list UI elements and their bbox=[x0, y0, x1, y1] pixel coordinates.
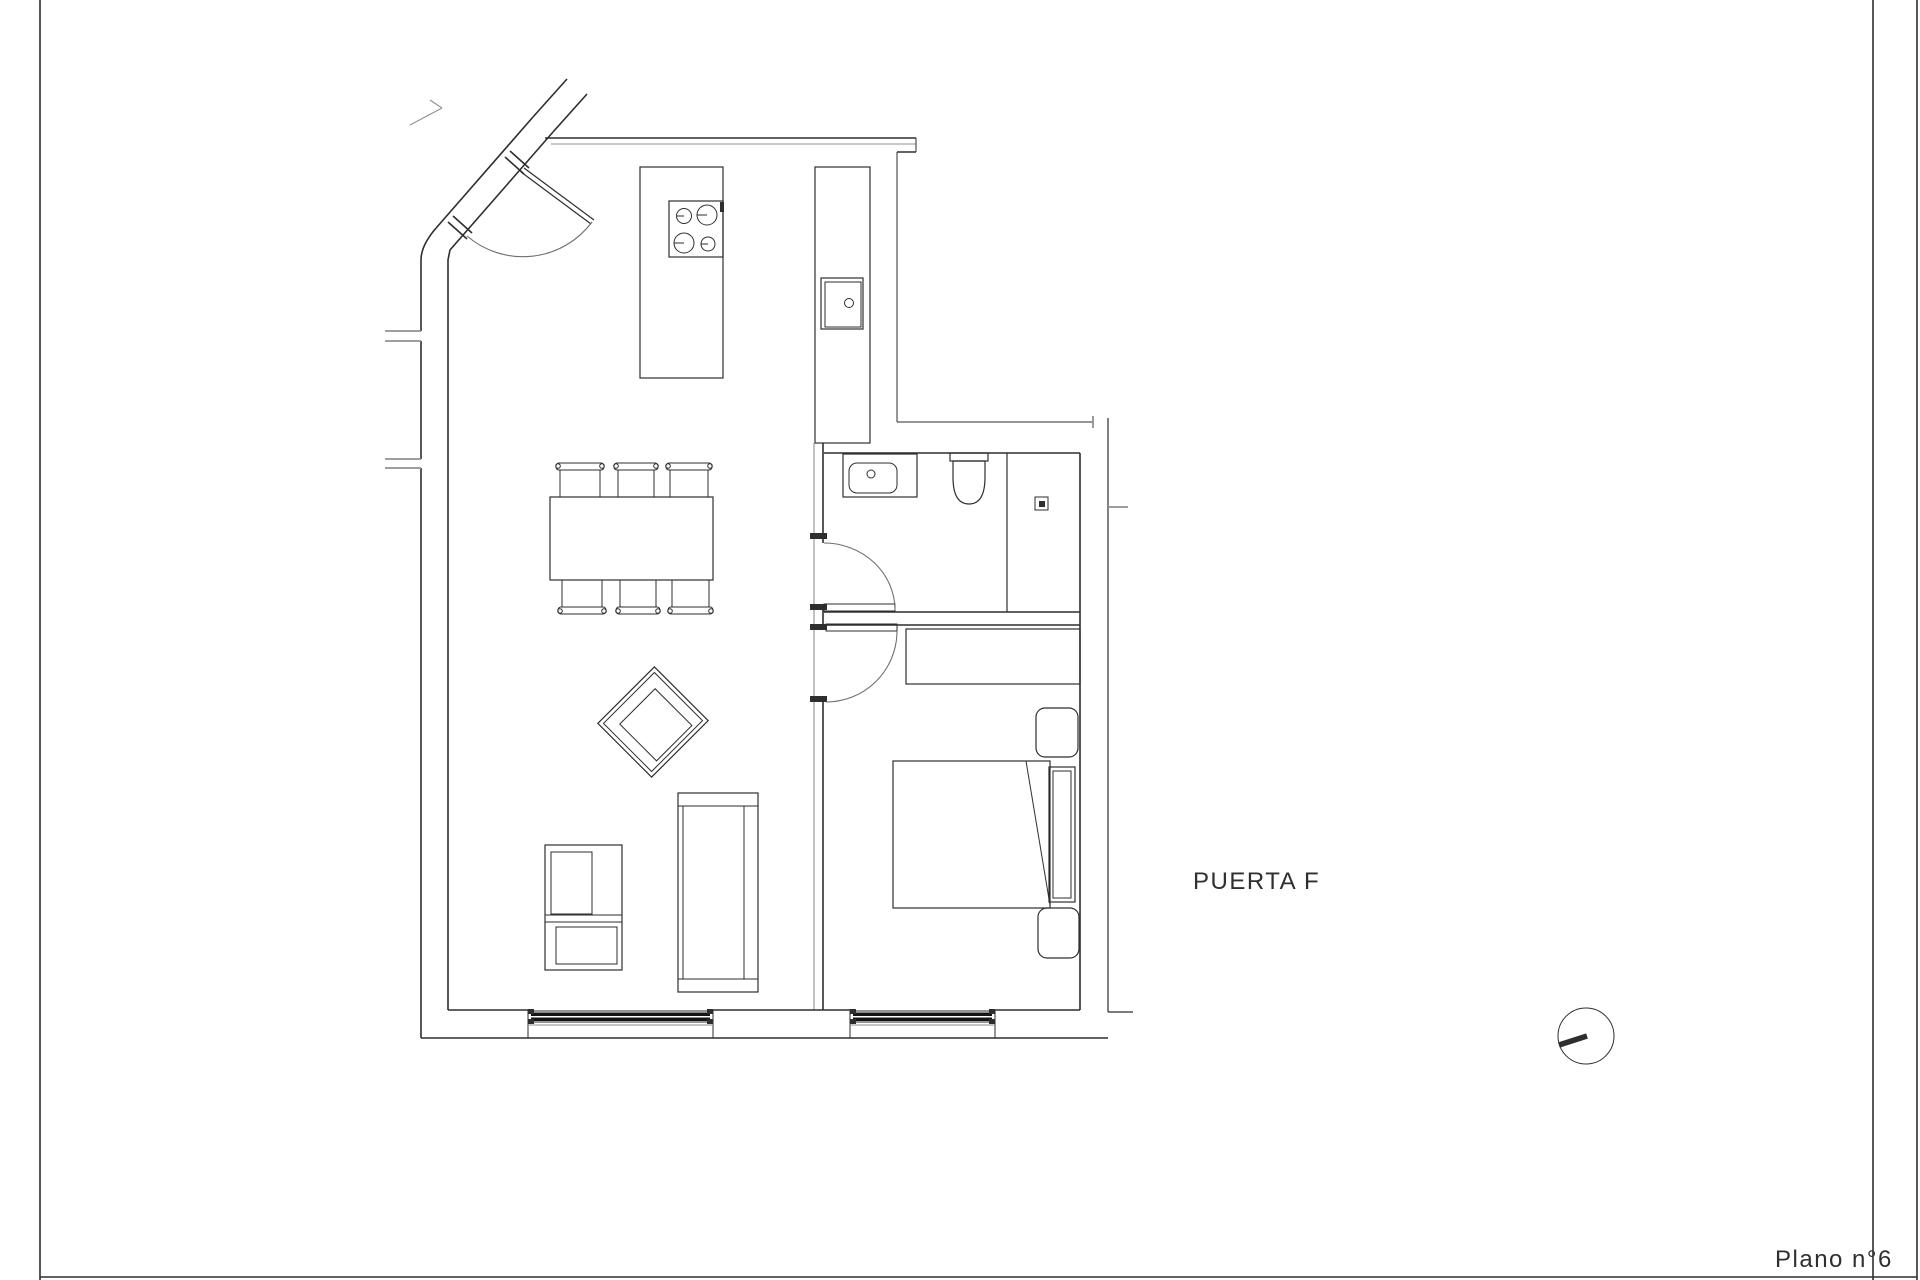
kitchen-counter bbox=[815, 167, 870, 443]
left-wall bbox=[385, 117, 553, 1038]
vanity-sink-icon bbox=[843, 454, 917, 497]
bedroom-door bbox=[826, 624, 897, 702]
kitchen-sink-icon bbox=[821, 278, 863, 329]
sofa bbox=[678, 793, 758, 992]
sheet-border bbox=[40, 0, 1917, 1280]
chair bbox=[616, 580, 661, 614]
right-wall bbox=[897, 416, 1133, 1012]
central-wall bbox=[810, 443, 827, 1010]
shower-icon bbox=[1007, 453, 1048, 612]
door-label: PUERTA F bbox=[1193, 868, 1320, 896]
wardrobe bbox=[906, 629, 1080, 684]
nightstand bbox=[1036, 708, 1078, 757]
chair bbox=[666, 463, 713, 497]
bathroom bbox=[824, 453, 1080, 1010]
armchair bbox=[598, 667, 708, 777]
bathroom-door bbox=[824, 543, 895, 611]
floor-plan bbox=[0, 0, 1920, 1280]
plan-number-label: Plano n°6 bbox=[1775, 1246, 1893, 1274]
window-living-room bbox=[528, 1009, 713, 1025]
door-swing-arc bbox=[467, 222, 592, 257]
door-leaf bbox=[521, 168, 594, 224]
mattress bbox=[893, 761, 1050, 908]
chair bbox=[668, 580, 714, 614]
chair bbox=[614, 463, 659, 497]
party-wall-tick-icon bbox=[385, 331, 421, 468]
cooktop-icon bbox=[669, 201, 724, 257]
window-bedroom bbox=[850, 1009, 995, 1025]
top-wall bbox=[545, 138, 916, 422]
toilet-icon bbox=[950, 453, 988, 504]
dining-table bbox=[550, 497, 713, 580]
orientation-marker-icon bbox=[1558, 1008, 1614, 1064]
entrance-door bbox=[448, 151, 594, 257]
door-jamb-icon bbox=[810, 696, 827, 702]
dining-chairs bbox=[556, 463, 714, 614]
chair bbox=[556, 463, 605, 497]
tv-cabinet bbox=[545, 845, 622, 970]
door-jamb-icon bbox=[810, 533, 827, 539]
drawing-sheet: PUERTA F Plano n°6 bbox=[0, 0, 1920, 1280]
duvet-fold bbox=[1026, 761, 1050, 905]
chair bbox=[558, 580, 607, 614]
bottom-wall bbox=[421, 1010, 1108, 1038]
neighbour-wall-stubs bbox=[410, 79, 587, 132]
bedroom bbox=[893, 629, 1080, 958]
kitchen-island bbox=[640, 167, 724, 378]
nightstand bbox=[1038, 908, 1079, 958]
bed bbox=[893, 761, 1075, 908]
